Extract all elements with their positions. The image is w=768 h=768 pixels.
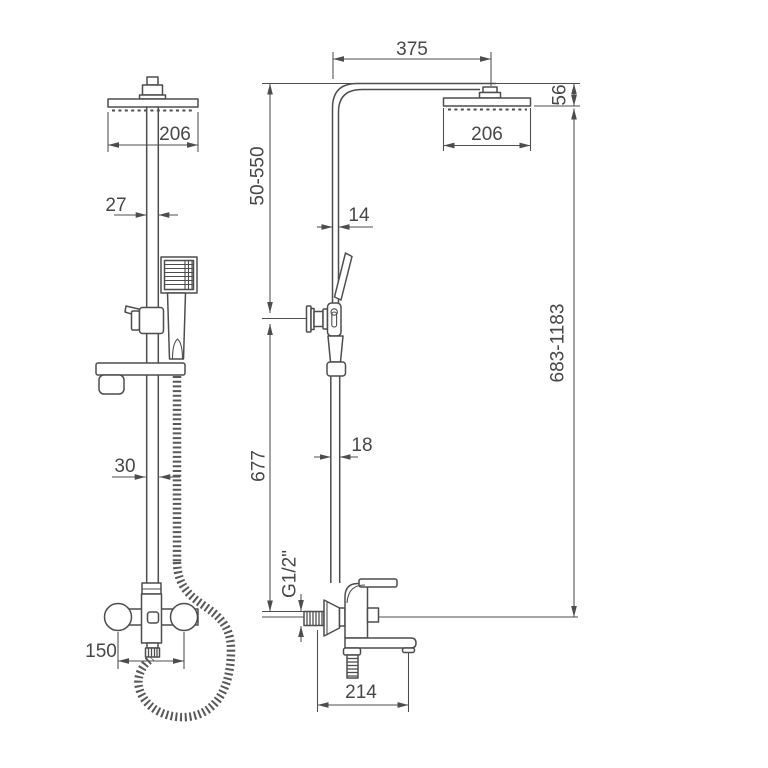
dim-side-pipe-upper: 14: [317, 205, 373, 227]
dim-side-head-depth: 206: [444, 108, 531, 151]
dim-front-mount-spacing: 150: [85, 632, 184, 669]
mount-ring-left: [105, 604, 132, 631]
spout-side: [345, 638, 416, 648]
dim-side-arm-reach: 375: [333, 39, 491, 86]
soap-shelf-front: [96, 363, 185, 394]
spout-aerator: [403, 648, 415, 653]
mixer-lever: [359, 579, 397, 587]
dim-side-pipe-lower: 18: [314, 435, 373, 457]
blueprint-canvas: 206 27: [0, 0, 768, 768]
dim-label-side-riser-height: 677: [249, 450, 270, 482]
dim-label-front-pipe-lower: 30: [114, 456, 135, 477]
dim-front-head-width: 206: [108, 112, 198, 152]
hand-shower-front: [161, 257, 197, 359]
slider-bracket-front: [125, 306, 164, 334]
hand-shower-side: [335, 253, 353, 300]
dim-label-side-arm-reach: 375: [396, 39, 428, 60]
dim-front-pipe-upper: 27: [105, 195, 178, 216]
front-view: 206 27: [85, 77, 231, 717]
dim-label-side-pipe-lower: 18: [351, 435, 372, 456]
technical-drawing: 206 27: [0, 0, 768, 768]
dim-side-head-height: 56: [550, 84, 575, 107]
dim-label-side-thread: G1/2": [280, 550, 301, 598]
dim-side-upper-range: 50-550: [248, 84, 308, 319]
riser-pipe-side: [331, 84, 496, 584]
pipe-collar: [327, 362, 346, 376]
dim-label-front-pipe-upper: 27: [105, 195, 126, 216]
dim-label-side-head-height: 56: [550, 84, 571, 105]
riser-pipe-front: [147, 107, 159, 583]
rain-shower-head-front: [108, 77, 198, 111]
shower-hose: [138, 376, 231, 717]
dim-side-total-range: 683-1183: [548, 109, 575, 618]
diverter-button: [148, 612, 159, 623]
dim-label-side-head-depth: 206: [471, 124, 503, 145]
dim-label-side-spout-reach: 214: [345, 682, 377, 703]
mixer-body-side: [345, 584, 368, 639]
wall-escutcheon: [324, 600, 340, 636]
dim-side-thread: G1/2": [280, 550, 302, 642]
dim-label-front-mount-spacing: 150: [85, 641, 117, 662]
mount-ring-right: [171, 604, 198, 631]
dim-label-front-head-width: 206: [159, 124, 191, 145]
mixer-side: [262, 579, 578, 678]
dim-label-side-total-range: 683-1183: [548, 304, 569, 383]
dim-label-side-upper-range: 50-550: [248, 146, 269, 205]
slider-bracket-side: [307, 303, 346, 376]
dim-label-side-pipe-upper: 14: [348, 205, 370, 226]
side-view: 375 206 56 683-1183 50-550: [248, 39, 581, 712]
